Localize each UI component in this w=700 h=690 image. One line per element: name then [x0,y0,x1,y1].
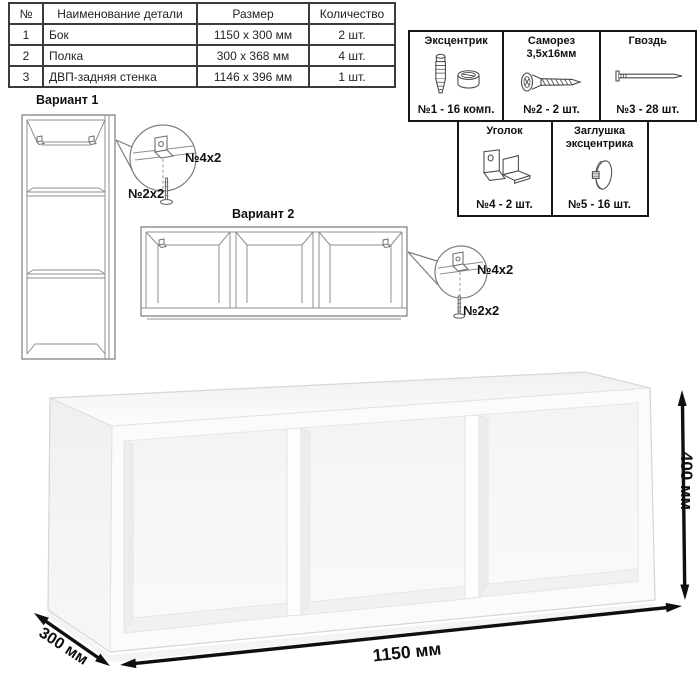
shelf-3d-render [0,365,700,690]
part-qty: 4 шт. [309,45,395,66]
part-size: 1146 x 396 мм [197,66,309,87]
assembly-instruction-sheet: № Наименование детали Размер Количество … [0,0,700,690]
part-name: Полка [43,45,197,66]
hardware-title: Гвоздь [629,35,667,48]
corner-bracket-icon [473,138,537,199]
part-size: 1150 x 300 мм [197,24,309,45]
part-qty: 1 шт. [309,66,395,87]
part-size: 300 x 368 мм [197,45,309,66]
parts-table: № Наименование детали Размер Количество … [8,2,396,88]
height-dimension-label: 400 мм [676,445,696,517]
part-qty: 2 шт. [309,24,395,45]
part-number: 1 [9,24,43,45]
variant1-bracket-label: №4х2 [185,150,221,165]
screw-icon [518,60,584,104]
variant2-bracket-label: №4х2 [477,262,513,277]
hardware-title: Эксцентрик [425,35,488,48]
col-size-header: Размер [197,3,309,24]
col-name-header: Наименование детали [43,3,197,24]
hardware-qty: №3 - 28 шт. [616,104,679,116]
table-row: 2 Полка 300 x 368 мм 4 шт. [9,45,395,66]
part-number: 2 [9,45,43,66]
hardware-title: Саморез 3,5х16мм [506,35,596,60]
parts-table-header: № Наименование детали Размер Количество [9,3,395,24]
hardware-cell-bracket: Уголок №4 - 2 шт. [457,120,553,217]
hardware-qty: №4 - 2 шт. [476,199,532,211]
hardware-row-2: Уголок №4 - 2 шт. [408,120,697,217]
hardware-panel: Эксцентрик [408,30,697,217]
col-qty-header: Количество [309,3,395,24]
part-name: Бок [43,24,197,45]
table-row: 1 Бок 1150 x 300 мм 2 шт. [9,24,395,45]
hardware-cell-screw: Саморез 3,5х16мм №2 - 2 шт. [504,30,600,122]
variant2-screw-label: №2х2 [463,303,499,318]
hardware-row-1: Эксцентрик [408,30,697,122]
hardware-qty: №5 - 16 шт. [568,199,631,211]
hardware-title: Заглушка эксцентрика [555,125,645,150]
variant2-title: Вариант 2 [232,207,294,221]
nail-icon [612,48,684,104]
mini-bracket-icon [37,136,96,145]
part-name: ДВП-задняя стенка [43,66,197,87]
part-number: 3 [9,66,43,87]
variant1-screw-label: №2х2 [128,186,164,201]
cam-and-dowel-icon [425,48,487,104]
mini-bracket-icon [159,239,390,248]
hardware-title: Уголок [486,125,522,138]
shelf-left-face [48,398,112,652]
shelf-divider [465,415,479,599]
hardware-cell-eccentric: Эксцентрик [408,30,504,122]
hardware-cell-cap: Заглушка эксцентрика №5 - 16 шт. [553,120,649,217]
cam-cap-icon [582,150,618,199]
shelf-divider [287,428,301,616]
col-number-header: № [9,3,43,24]
variant1-title: Вариант 1 [36,93,98,107]
hardware-qty: №1 - 16 комп. [418,104,495,116]
hardware-cell-nail: Гвоздь №3 - 28 шт. [601,30,697,122]
table-row: 3 ДВП-задняя стенка 1146 x 396 мм 1 шт. [9,66,395,87]
hardware-qty: №2 - 2 шт. [523,104,579,116]
